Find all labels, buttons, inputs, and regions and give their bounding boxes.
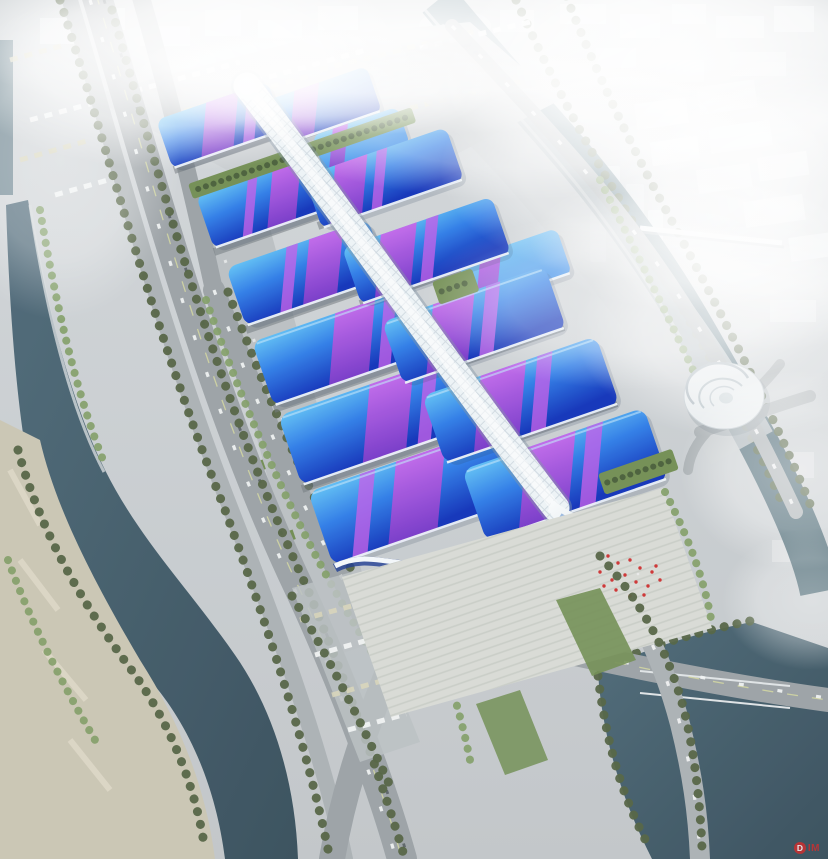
watermark-badge-icon: D bbox=[794, 842, 806, 854]
fog-overlay bbox=[0, 0, 828, 859]
watermark-text: IM bbox=[808, 843, 820, 854]
aerial-rendering-canvas: D IM bbox=[0, 0, 828, 859]
watermark-logo: D IM bbox=[794, 842, 820, 854]
scene-svg bbox=[0, 0, 828, 859]
